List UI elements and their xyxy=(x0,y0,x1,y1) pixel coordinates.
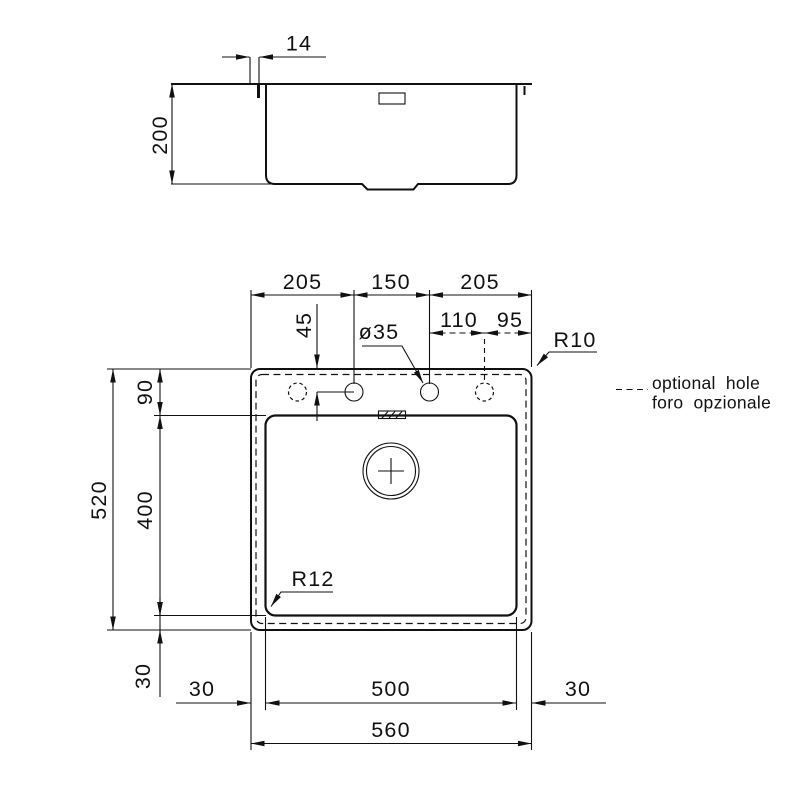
dim-45-label: 45 xyxy=(292,312,316,338)
optional-hole-right xyxy=(476,383,494,401)
dimension-depth: 200 xyxy=(148,84,275,184)
r12-label: R12 xyxy=(291,567,334,591)
dim-205-left-label: 205 xyxy=(283,270,322,294)
outer-radius-callout: R10 xyxy=(537,328,597,366)
legend-foro-opzionale: foro opzionale xyxy=(652,393,771,413)
dim-500-label: 500 xyxy=(371,677,410,701)
dim-560-label: 560 xyxy=(371,718,410,742)
dimension-tap-hole-offset: 14 xyxy=(222,32,326,58)
dim-110-label: 110 xyxy=(440,308,478,332)
plan-view: 205 150 205 110 95 45 ø35 R10 xyxy=(87,270,606,750)
dimension-bottom-chain: 30 500 30 560 xyxy=(176,617,606,750)
sink-technical-drawing: 14 200 xyxy=(0,0,798,799)
bowl-radius-callout: R12 xyxy=(271,567,335,607)
dim-95-label: 95 xyxy=(497,308,523,332)
dimension-left-chain: 520 90 400 30 xyxy=(87,369,266,697)
dim-205-right-label: 205 xyxy=(460,270,499,294)
dim-30-bottom-rim-label: 30 xyxy=(131,663,155,689)
dim-200-label: 200 xyxy=(148,115,172,154)
legend: optional hole foro opzionale xyxy=(616,373,771,413)
technical-drawing-page: 14 200 xyxy=(0,0,798,799)
dimension-hole-to-bowl: 45 xyxy=(292,304,354,421)
dia-35-label: ø35 xyxy=(359,320,400,344)
dim-14-label: 14 xyxy=(286,32,312,56)
right-edge-tick xyxy=(524,86,526,95)
dimension-optional-hole-chain: 110 95 xyxy=(430,308,532,384)
dim-90-label: 90 xyxy=(133,379,157,405)
drain xyxy=(363,443,419,499)
dim-30-right-label: 30 xyxy=(565,677,591,701)
side-view: 14 200 xyxy=(148,32,532,190)
optional-hole-left xyxy=(289,383,307,401)
legend-optional-hole: optional hole xyxy=(652,373,760,393)
overflow-window xyxy=(379,93,405,104)
dim-30-left-label: 30 xyxy=(189,677,215,701)
dim-520-label: 520 xyxy=(87,480,111,519)
hole-diameter-callout: ø35 xyxy=(359,320,423,383)
tap-hole-right xyxy=(421,383,439,401)
r10-label: R10 xyxy=(553,328,596,352)
bowl-profile xyxy=(266,85,517,190)
tap-stub-tick xyxy=(257,85,260,98)
dim-400-label: 400 xyxy=(133,490,157,529)
dim-150-label: 150 xyxy=(371,270,410,294)
